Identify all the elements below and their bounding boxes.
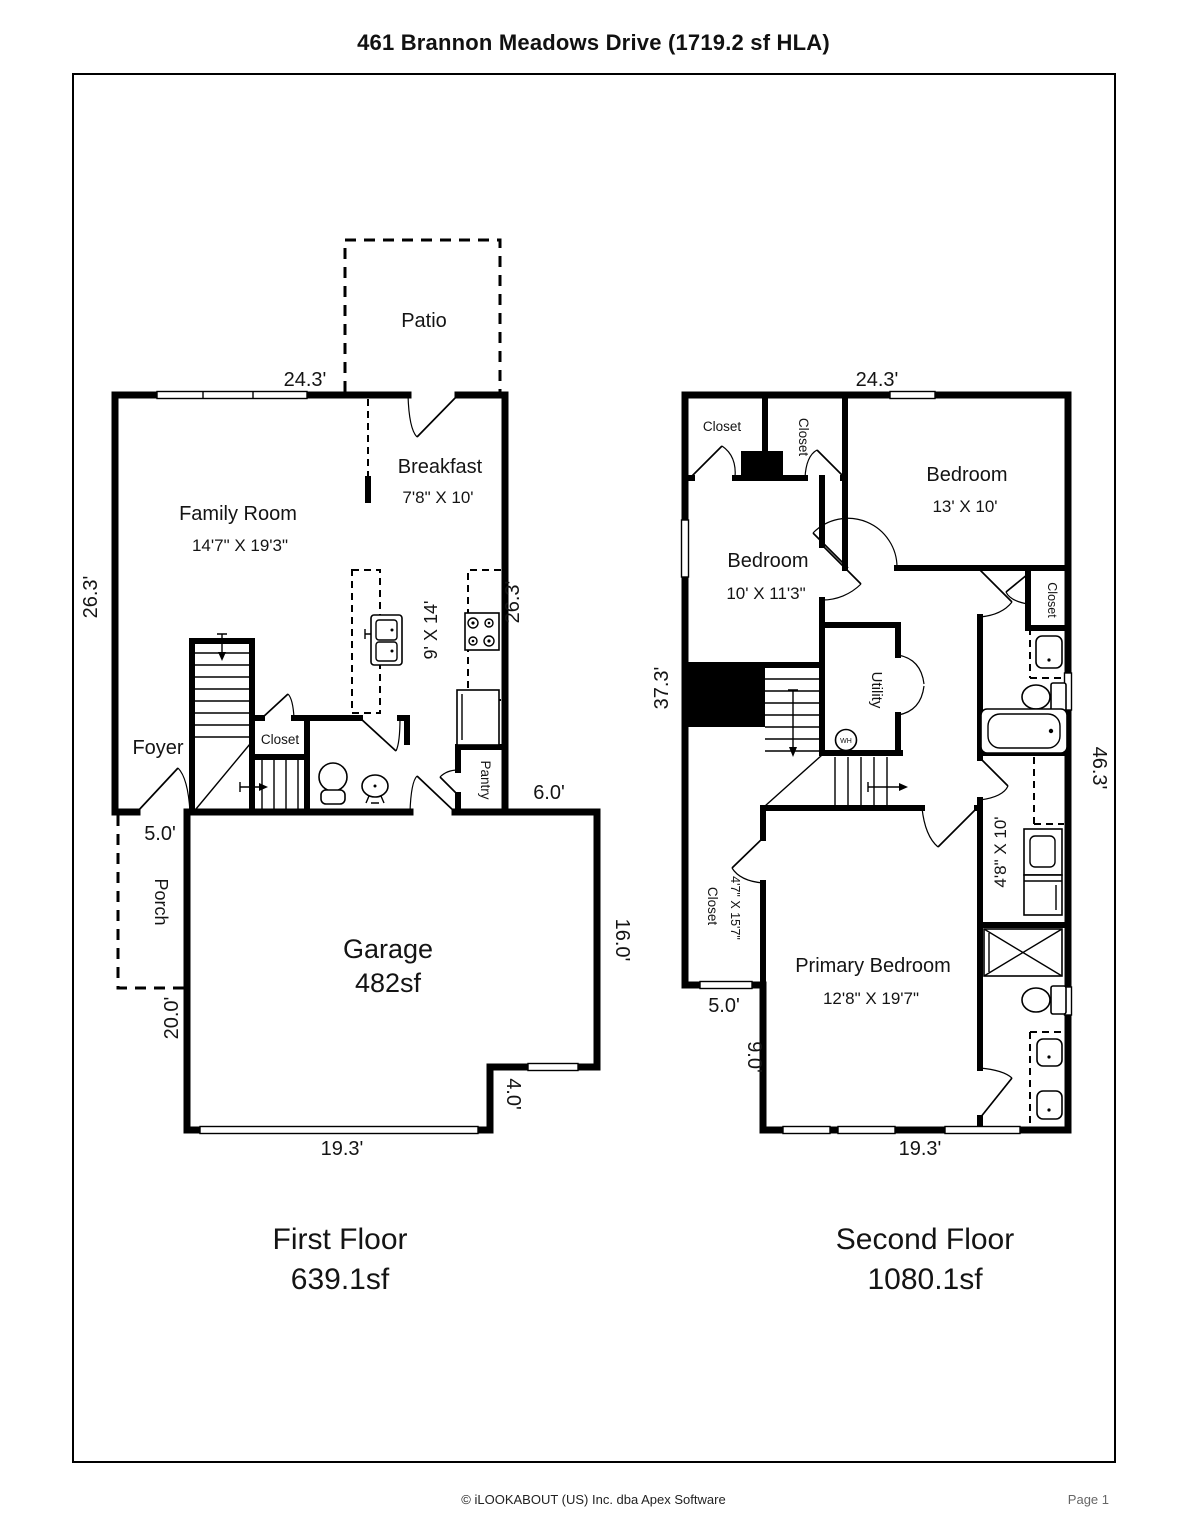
room-dims: 14'7" X 19'3" (192, 536, 288, 555)
stairwell-void (685, 665, 765, 727)
dim-label: 37.3' (651, 667, 673, 710)
dim-label: 26.3' (80, 576, 102, 619)
bathtub (981, 709, 1067, 753)
dim-label: 26.3' (502, 581, 524, 624)
garage-service-door (410, 776, 455, 812)
stairs (195, 653, 298, 809)
room-dims-bath: 4'8" X 10' (991, 816, 1010, 887)
room-dims: 7'8" X 10' (402, 488, 473, 507)
stove (465, 613, 499, 650)
window (890, 392, 935, 399)
front-door (137, 768, 190, 812)
pedestal-sink (362, 775, 388, 803)
footer-copyright: © iLOOKABOUT (US) Inc. dba Apex Software (0, 1492, 1187, 1507)
window (157, 392, 307, 399)
room-label-utility: Utility (868, 672, 885, 709)
room-dims: 13' X 10' (932, 497, 997, 516)
water-heater: WH (836, 730, 857, 751)
svg-text:WH: WH (840, 738, 852, 745)
dim-label: 19.3' (321, 1138, 364, 1160)
dim-label: 5.0' (708, 995, 740, 1017)
floor-caption: First Floor (273, 1223, 408, 1256)
room-label-closet: Closet (1045, 582, 1059, 618)
room-dims: 10' X 11'3" (726, 584, 805, 603)
room-area-garage: 482sf (355, 968, 422, 998)
floor-area: 639.1sf (291, 1263, 390, 1296)
room-label-patio: Patio (401, 310, 447, 332)
floor-plan-drawing: Patio 24.3' Family Room 14'7" X 19'3" Br… (0, 0, 1187, 1536)
bathroom-door (360, 718, 400, 751)
vanity-sink (1030, 628, 1064, 678)
room-label-closet: Closet (703, 419, 742, 434)
utility-double-doors (898, 655, 924, 715)
dim-label: 16.0' (611, 919, 633, 962)
kitchen-sink (365, 615, 402, 665)
window (700, 982, 752, 989)
room-dims: 12'8" X 19'7" (823, 989, 919, 1008)
footer-page-number: Page 1 (1068, 1492, 1109, 1507)
floor-plan-sheet: 461 Brannon Meadows Drive (1719.2 sf HLA… (0, 0, 1187, 1536)
room-label-foyer: Foyer (132, 737, 183, 759)
second-floor-plan: WH (651, 369, 1110, 1296)
garage-door-opening (200, 1127, 478, 1134)
exterior-wall (685, 395, 1068, 1130)
room-label-closet: Closet (796, 418, 811, 457)
washer (1024, 829, 1062, 875)
dim-label: 19.3' (899, 1138, 942, 1160)
primary-bath-door (980, 1068, 1012, 1118)
room-label-family-room: Family Room (179, 503, 297, 525)
room-label-closet: Closet (261, 732, 300, 747)
bedroom-door (822, 545, 861, 600)
room-label-bedroom: Bedroom (926, 464, 1007, 486)
closet-door (690, 446, 735, 478)
window (682, 520, 689, 577)
dim-label: 20.0' (161, 997, 183, 1040)
interior-wall (685, 395, 1068, 1130)
bedroom-door (813, 518, 897, 568)
room-label-pantry: Pantry (478, 760, 493, 799)
closet-door (262, 694, 294, 718)
room-label-bedroom: Bedroom (727, 550, 808, 572)
vanity-sink (1030, 1032, 1064, 1127)
room-label-primary-bedroom: Primary Bedroom (795, 955, 951, 977)
primary-bedroom-door (922, 808, 977, 847)
refrigerator (457, 690, 499, 745)
room-dims: 4'7" X 15'7" (728, 876, 742, 940)
room-label-closet: Closet (705, 887, 720, 926)
room-label-garage: Garage (343, 934, 433, 964)
room-dims-kitchen: 9' X 14' (421, 601, 441, 660)
window (783, 1127, 830, 1134)
toilet (1022, 986, 1066, 1014)
room-label-breakfast: Breakfast (398, 456, 483, 478)
shower (984, 929, 1062, 976)
laundry-door (980, 758, 1008, 800)
dim-label: 24.3' (856, 369, 899, 391)
toilet (319, 763, 347, 804)
dim-label: 6.0' (533, 782, 565, 804)
window (838, 1127, 895, 1134)
room-label-porch: Porch (151, 878, 171, 925)
dim-label: 4.0' (502, 1078, 524, 1110)
dryer (1024, 875, 1062, 915)
toilet (1022, 683, 1066, 711)
window (528, 1064, 578, 1071)
chase-block (741, 451, 783, 478)
dim-label: 24.3' (284, 369, 327, 391)
patio-door (408, 395, 458, 437)
pantry-door (440, 770, 458, 795)
dim-label: 9.0' (743, 1041, 765, 1073)
linen-shelves (1034, 757, 1064, 824)
floor-caption: Second Floor (836, 1223, 1014, 1256)
dim-label: 46.3' (1088, 747, 1110, 790)
floor-area: 1080.1sf (867, 1263, 983, 1296)
window (945, 1127, 1020, 1134)
dim-label: 5.0' (144, 823, 176, 845)
first-floor-plan: Patio 24.3' Family Room 14'7" X 19'3" Br… (80, 240, 633, 1296)
